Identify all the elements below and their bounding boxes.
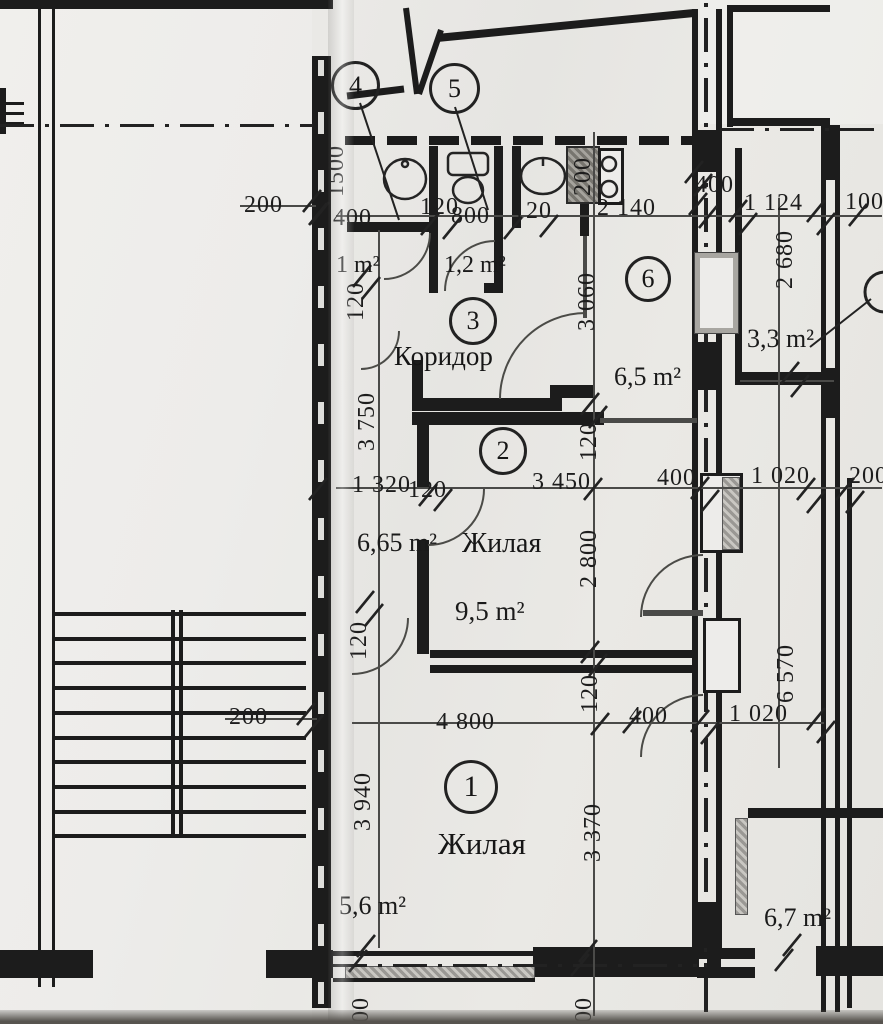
dim-top-800: 800: [451, 203, 490, 230]
stove-burner-icon: [602, 157, 616, 171]
floor-plan: 4 5 6 3 2 1 Коридор Жилая Жилая 1 m² 1,2…: [0, 0, 883, 1024]
dim-v-200-shaft: 200: [570, 157, 597, 196]
room-number-5: 5: [429, 63, 480, 114]
area-kitchen: 6,5 m²: [614, 362, 681, 392]
dim-mid-1320: 1 320: [352, 472, 411, 499]
dim-v-3750: 3 750: [354, 392, 381, 451]
area-wc: 1,2 m²: [444, 252, 506, 279]
dim-v-120b: 120: [576, 422, 603, 461]
dim-v-3060: 3 060: [574, 272, 601, 331]
leader-lines: [360, 103, 871, 347]
dim-v-2680: 2 680: [772, 230, 799, 289]
room-number-3: 3: [449, 297, 497, 345]
dim-mid-3450: 3 450: [532, 469, 591, 496]
dim-top-100: 100: [845, 189, 883, 216]
dim-v-120d: 120: [577, 674, 604, 713]
dim-v-2800: 2 800: [576, 529, 603, 588]
dim-top-2140: 2 140: [597, 195, 656, 222]
toilet-tank-icon: [448, 153, 488, 175]
dim-r3-4800: 4 800: [436, 709, 495, 736]
break-mark-icon: [406, 8, 417, 94]
area-hall: 6,65 m²: [357, 528, 437, 558]
dim-v-3940: 3 940: [350, 772, 377, 831]
area-right-bottom: 6,7 m²: [764, 903, 831, 933]
dim-top-120b: 120: [513, 198, 552, 225]
room-number-circle-partial: [865, 272, 883, 312]
paper-fold-crease: [328, 0, 354, 1024]
area-living2: 9,5 m²: [455, 596, 525, 627]
room-number-1: 1: [444, 760, 498, 814]
dim-top-1124: 1 124: [744, 190, 803, 217]
dim-v-3370: 3 370: [580, 803, 607, 862]
dim-mid-1020: 1 020: [751, 463, 810, 490]
room-label-living2: Жилая: [462, 528, 541, 560]
dim-mid-200: 200: [849, 463, 883, 490]
dim-mid-120: 120: [408, 477, 447, 504]
area-storage: 3,3 m²: [747, 324, 814, 354]
dim-mid-400: 400: [657, 465, 696, 492]
room-number-6: 6: [625, 256, 671, 302]
dim-left-200a: 200: [244, 192, 283, 219]
dim-left-200b: 200: [229, 704, 268, 731]
dim-v-6570: 6 570: [773, 644, 800, 703]
dim-r3-400: 400: [629, 703, 668, 730]
room-label-living1: Жилая: [438, 826, 526, 862]
exterior-top-wall: [347, 8, 694, 96]
toilet-icon: [384, 159, 426, 199]
ink-layer: [0, 0, 883, 1024]
photo-bottom-shadow: [0, 1010, 883, 1024]
room-number-2: 2: [479, 427, 527, 475]
dim-r3-1020: 1 020: [729, 701, 788, 728]
room-label-corridor: Коридор: [394, 341, 493, 372]
dim-top-400b: 400: [695, 172, 734, 199]
